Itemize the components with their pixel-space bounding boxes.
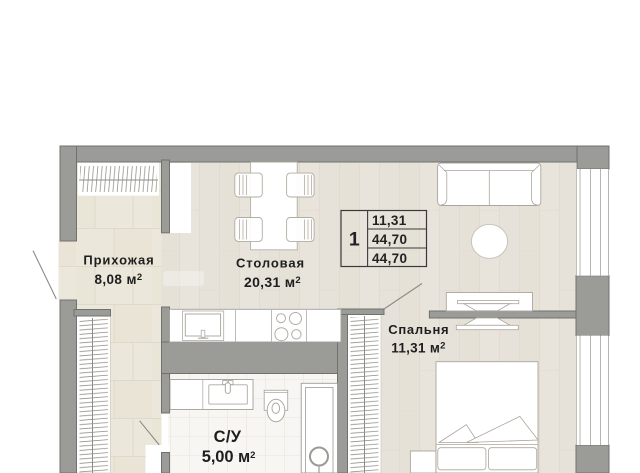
svg-text:Столовая: Столовая (236, 255, 305, 270)
svg-text:20,31 м2: 20,31 м2 (244, 274, 301, 290)
svg-text:1: 1 (349, 229, 360, 251)
svg-text:Прихожая: Прихожая (83, 253, 154, 268)
svg-text:44,70: 44,70 (372, 251, 407, 266)
svg-text:11,31: 11,31 (372, 213, 407, 228)
svg-text:Спальня: Спальня (388, 322, 449, 337)
svg-text:С/У: С/У (214, 428, 242, 446)
svg-text:11,31 м2: 11,31 м2 (391, 341, 445, 356)
svg-text:44,70: 44,70 (372, 232, 407, 247)
svg-text:5,00 м2: 5,00 м2 (202, 448, 256, 466)
svg-text:8,08 м2: 8,08 м2 (94, 272, 142, 287)
